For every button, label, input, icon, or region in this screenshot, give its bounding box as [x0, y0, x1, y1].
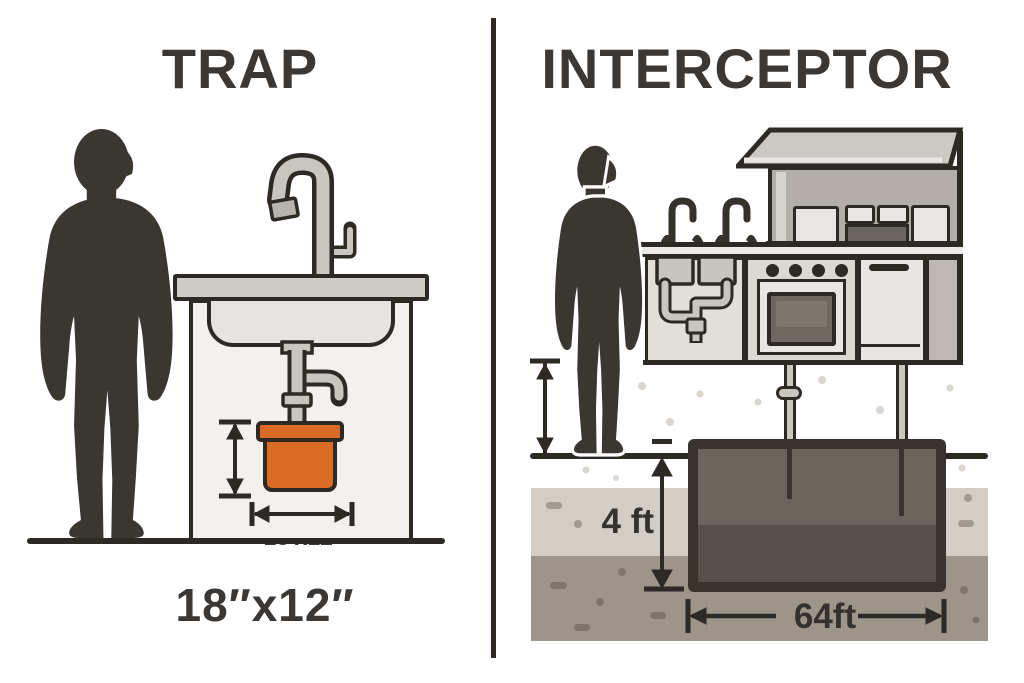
- tank-lower-chamber: [698, 525, 936, 582]
- burner-knob-1: [766, 264, 779, 277]
- trap-vs-interceptor-diagram: TRAP: [0, 0, 1024, 683]
- kitchen-faucets: [652, 196, 772, 246]
- trap-width-arrow: [249, 500, 355, 528]
- interceptor-title: INTERCEPTOR: [512, 36, 982, 101]
- height-reference-arrow: [528, 358, 562, 457]
- grease-trap-lid: [256, 421, 344, 442]
- oven-window: [776, 301, 827, 327]
- sink-counter-left: [173, 274, 429, 301]
- shelf-box-mid-b: [877, 205, 909, 224]
- kitchen-counter: [641, 242, 963, 257]
- shelf-box-mid-a: [845, 205, 875, 224]
- dishwasher-handle: [869, 264, 909, 271]
- trap-height-arrow: [216, 419, 254, 499]
- panel-divider: [491, 18, 496, 658]
- tank-inlet-pipe-right: [899, 449, 904, 516]
- dishwasher-unit: [858, 257, 926, 363]
- tank-top-tick: [652, 439, 672, 444]
- under-sink-pipes: [649, 257, 744, 363]
- shelf-box-right: [911, 205, 950, 245]
- grease-trap-body: [263, 438, 337, 492]
- dishwasher-kick-line: [861, 344, 920, 347]
- length-label: 64ft: [775, 597, 875, 637]
- hood-canopy: [736, 124, 968, 176]
- floor-line-left: [27, 538, 445, 544]
- burner-knob-4: [835, 264, 848, 277]
- depth-label: 4 ft: [566, 502, 654, 542]
- kitchen-base-line: [643, 360, 963, 365]
- person-silhouette-left: [25, 128, 177, 543]
- burner-knob-3: [812, 264, 825, 277]
- trap-size-caption: 18″x12″: [135, 578, 395, 632]
- drain-pipe-union: [776, 386, 802, 400]
- interceptor-tank: [688, 439, 946, 592]
- tank-inlet-pipe-left: [787, 449, 792, 499]
- shelf-box-left: [793, 206, 839, 245]
- trap-title: TRAP: [105, 36, 375, 101]
- burner-knob-2: [789, 264, 802, 277]
- hood-highlight: [776, 172, 786, 242]
